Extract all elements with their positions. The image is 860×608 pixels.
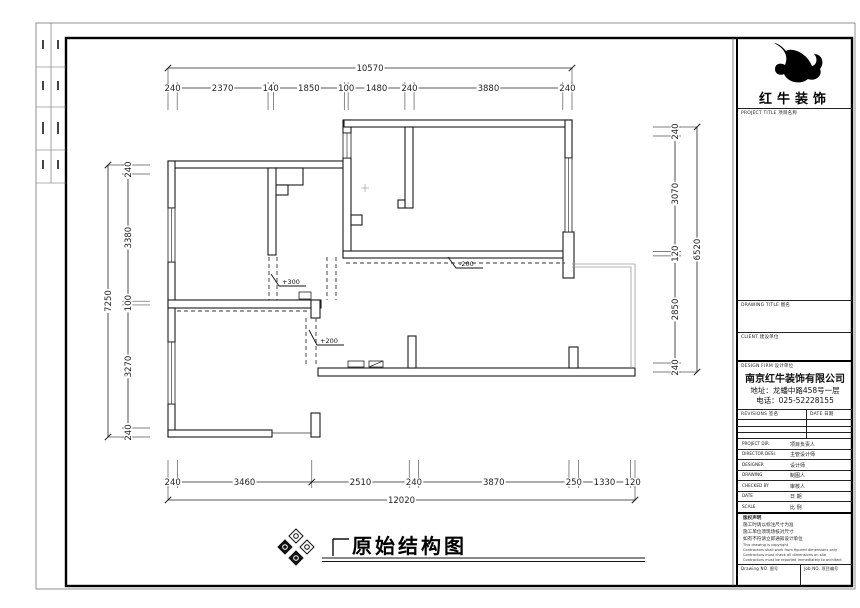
- note-line-en: Contractors must check all dimensions on…: [743, 553, 826, 557]
- dimension-value: 240: [124, 424, 134, 440]
- dimension-value: 2850: [671, 299, 681, 321]
- dimension-value: 1330: [594, 478, 616, 488]
- info-row-zh: 制图人: [790, 472, 805, 479]
- level-annotation-200: +200: [320, 337, 338, 345]
- notes-title: 版权声明: [743, 515, 761, 521]
- dimension-value: 100: [338, 84, 354, 94]
- info-row-zh: 主管设计师: [790, 451, 815, 458]
- title-block: 红牛装饰 PROJECT TITLE 项目名称 DRAWING TITLE 图名…: [738, 38, 852, 586]
- dimension-value: 2510: [350, 478, 372, 488]
- client-label: CLIENT 建设单位: [741, 334, 779, 340]
- dimension-value: 1850: [298, 84, 320, 94]
- drawing-sheet: +300 +200 -200 2402370140185010014802403…: [0, 0, 860, 608]
- company-phone: 电话：025-52228155: [738, 395, 852, 406]
- dimension-value: 10570: [356, 64, 383, 74]
- revisions-label: REVISIONS 签名: [741, 411, 778, 417]
- note-line-en: Contractors must be reported immediately…: [743, 558, 842, 562]
- margin-signature-strip: [36, 23, 66, 183]
- title-bracket: [333, 539, 349, 556]
- note-line: 施工时请以标注尺寸为准: [743, 522, 794, 528]
- floor-plan-svg: +300 +200 -200 2402370140185010014802403…: [0, 0, 860, 608]
- dimension-value: 7250: [104, 290, 114, 312]
- info-row-zh: 审核人: [790, 483, 805, 490]
- drawing-no-label: Drawing NO. 图号: [741, 566, 778, 572]
- dimension-value: 120: [625, 478, 641, 488]
- info-row-en: PROJECT DIR.: [742, 441, 770, 446]
- drawing-title-label: DRAWING TITLE 图名: [741, 302, 790, 308]
- dimension-value: 240: [164, 84, 180, 94]
- level-annotation-300: +300: [282, 278, 300, 286]
- bull-logo-icon: [762, 40, 828, 86]
- dimension-value: 3380: [124, 227, 134, 249]
- dimension-value: 120: [671, 246, 681, 262]
- job-no-label: Job NO. 项目编号: [804, 566, 838, 572]
- dimension-value: 140: [263, 84, 279, 94]
- plan-dashed-lines: [177, 257, 565, 365]
- dimension-value: 240: [406, 478, 422, 488]
- strip-tiny-text-marks: [42, 40, 59, 169]
- balcony-lines: [572, 264, 635, 368]
- dimension-value: 3270: [124, 356, 134, 378]
- dimension-value: 240: [671, 123, 681, 139]
- dimension-value: 3870: [483, 478, 505, 488]
- dimension-value: 240: [559, 84, 575, 94]
- brand-name: 红牛装饰: [738, 88, 852, 107]
- note-line: 如有不符请立即通知设计单位: [743, 536, 803, 542]
- dimension-value: 250: [566, 478, 582, 488]
- dimension-chains: 2402370140185010014802403880240105702403…: [104, 64, 703, 506]
- sheet-title: 原始结构图: [352, 530, 467, 559]
- info-row-en: DESIGNER: [742, 462, 764, 467]
- info-row-en: DATE: [742, 493, 753, 498]
- dimension-value: 240: [165, 478, 181, 488]
- info-row-en: DIRECTOR DESI.: [742, 451, 776, 456]
- dimension-value: 3070: [671, 183, 681, 205]
- dimension-value: 3460: [234, 478, 256, 488]
- company-name: 南京红牛装饰有限公司: [738, 370, 852, 385]
- dimension-value: 1480: [366, 84, 388, 94]
- project-title-label: PROJECT TITLE 项目名称: [741, 110, 797, 116]
- note-line-en: This drawing is copyright: [743, 543, 788, 547]
- info-row-zh: 设计师: [790, 462, 805, 469]
- dimension-value: 240: [401, 84, 417, 94]
- info-row-zh: 项目负责人: [790, 441, 815, 448]
- dimension-value: 12020: [388, 496, 415, 506]
- design-firm-label: DESIGN FIRM 设计单位: [741, 363, 793, 369]
- level-annotation-minus200: -200: [459, 260, 474, 268]
- info-row-zh: 日 期: [790, 493, 802, 500]
- center-cross-marker: [361, 184, 369, 192]
- sheet-frame: [36, 23, 855, 589]
- info-row-zh: 比 例: [790, 504, 802, 511]
- dimension-value: 3880: [478, 84, 500, 94]
- info-row-en: DRAWING: [742, 472, 762, 477]
- info-row-en: SCALE: [742, 504, 755, 509]
- dimension-value: 240: [671, 359, 681, 375]
- info-row-en: CHECKED BY: [742, 483, 769, 488]
- dimension-value: 6520: [693, 239, 703, 261]
- dimension-value: 240: [124, 161, 134, 177]
- note-line: 施工单位须现场核对尺寸: [743, 529, 794, 535]
- note-line-en: Contractors shall work from figured dime…: [743, 548, 837, 552]
- revisions-date-label: DATE 日期: [810, 411, 834, 417]
- diamond-logo: [278, 529, 314, 565]
- dimension-value: 2370: [212, 84, 234, 94]
- dimension-value: 100: [124, 295, 134, 311]
